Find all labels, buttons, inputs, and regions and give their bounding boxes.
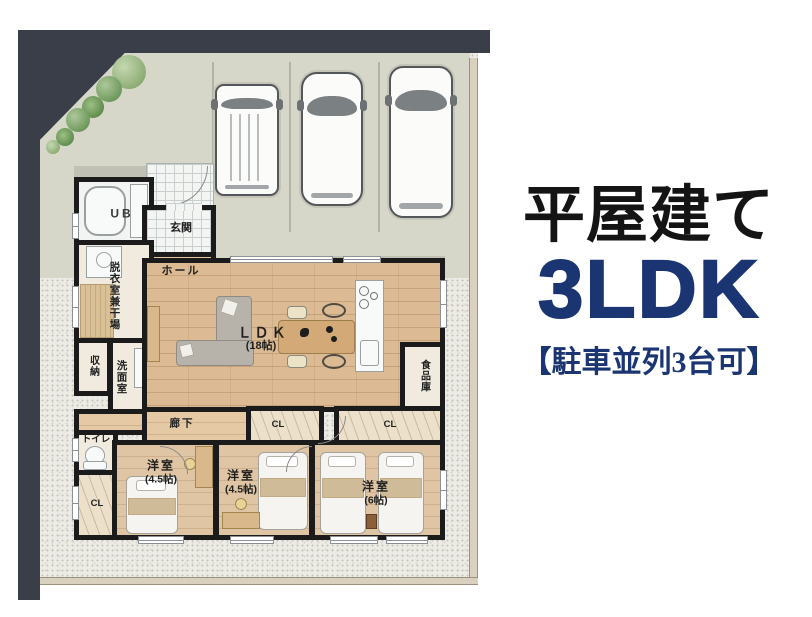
label-closet-west: CL [91, 498, 104, 510]
window [72, 438, 79, 462]
window [230, 536, 274, 544]
car-rear [225, 185, 269, 189]
car-icon [301, 72, 363, 206]
stove-burner [359, 299, 369, 309]
table-dish [331, 336, 337, 342]
label-ldk: ＬＤＫ [238, 324, 289, 342]
label-closet-east: CL [384, 419, 397, 431]
car-windshield [221, 98, 273, 109]
dining-table [278, 320, 355, 354]
car-roof-ridges [230, 114, 264, 181]
label-hall: ホール [162, 265, 201, 279]
label-ldk-size: (18帖) [246, 340, 277, 354]
entrance-doorway [166, 203, 202, 211]
dining-chair [322, 354, 346, 369]
headline-building-type: 平屋建て [486, 184, 812, 249]
window [138, 536, 184, 544]
car-mirror [297, 100, 304, 111]
window [72, 486, 79, 520]
car-mirror [385, 95, 392, 106]
car-icon [389, 66, 453, 218]
car-rear [311, 193, 354, 198]
label-toilet: トイレ [82, 434, 111, 446]
parking-line [289, 62, 291, 232]
window [386, 536, 428, 544]
fence-right [469, 58, 478, 584]
window [72, 286, 79, 328]
headline-parking-note: 【駐車並列3台可】 [486, 337, 812, 381]
pillow-icon [386, 456, 414, 467]
dining-chair [287, 306, 307, 319]
stove-burner [370, 292, 378, 300]
blanket-icon [128, 498, 176, 515]
car-mirror [276, 99, 283, 110]
window [72, 213, 79, 239]
dining-chair [287, 355, 307, 368]
sink-icon [360, 340, 379, 366]
stove-burner [359, 286, 369, 296]
window [440, 280, 447, 328]
nightstand-icon [366, 514, 377, 529]
headline-block: 平屋建て 3LDK 【駐車並列3台可】 [486, 184, 812, 381]
label-bedroom-b-size: (4.5帖) [225, 483, 257, 496]
window [230, 256, 333, 263]
label-pantry: 食品庫 [417, 360, 432, 393]
blanket-icon [260, 478, 306, 497]
label-storage: 収納 [86, 355, 101, 377]
toilet-tank [83, 461, 107, 470]
label-bedroom-c: 洋室 [362, 480, 390, 495]
label-closet-middle: CL [272, 419, 285, 431]
label-bedroom-a-size: (4.5帖) [145, 473, 177, 486]
label-bedroom-c-size: (6帖) [364, 494, 387, 507]
desk-icon [222, 512, 260, 529]
car-rear [399, 203, 443, 208]
car-mirror [450, 95, 457, 106]
parking-line [378, 62, 380, 232]
tree-icon [46, 140, 60, 154]
label-entrance: 玄関 [170, 222, 192, 236]
table-plant [300, 328, 309, 337]
car-mirror [360, 100, 367, 111]
table-dish [326, 326, 333, 333]
window [330, 536, 378, 544]
blanket-icon [322, 478, 364, 498]
desk-chair [235, 498, 247, 510]
tv-board [147, 306, 160, 362]
label-bedroom-a: 洋室 [147, 459, 175, 474]
fence-bottom [40, 577, 478, 585]
label-dressing: 脱衣室兼干場 [108, 262, 123, 331]
car-mirror [211, 99, 218, 110]
floorplan-page: UB 玄関 ホール 脱衣室兼干場 収納 洗面室 トイレ CL ＬＤＫ (18帖)… [0, 0, 812, 617]
label-corridor: 廊下 [170, 417, 195, 430]
window [343, 256, 381, 263]
dining-chair [322, 303, 346, 318]
pillow-icon [328, 456, 356, 467]
desk-icon [195, 446, 213, 488]
window [440, 470, 447, 510]
label-bedroom-b: 洋室 [227, 469, 255, 484]
car-windshield [307, 96, 357, 116]
label-washroom: 洗面室 [115, 360, 130, 395]
headline-layout: 3LDK [486, 251, 812, 329]
car-icon [215, 84, 279, 196]
car-windshield [395, 90, 447, 111]
label-unit-bath: UB [110, 207, 133, 222]
